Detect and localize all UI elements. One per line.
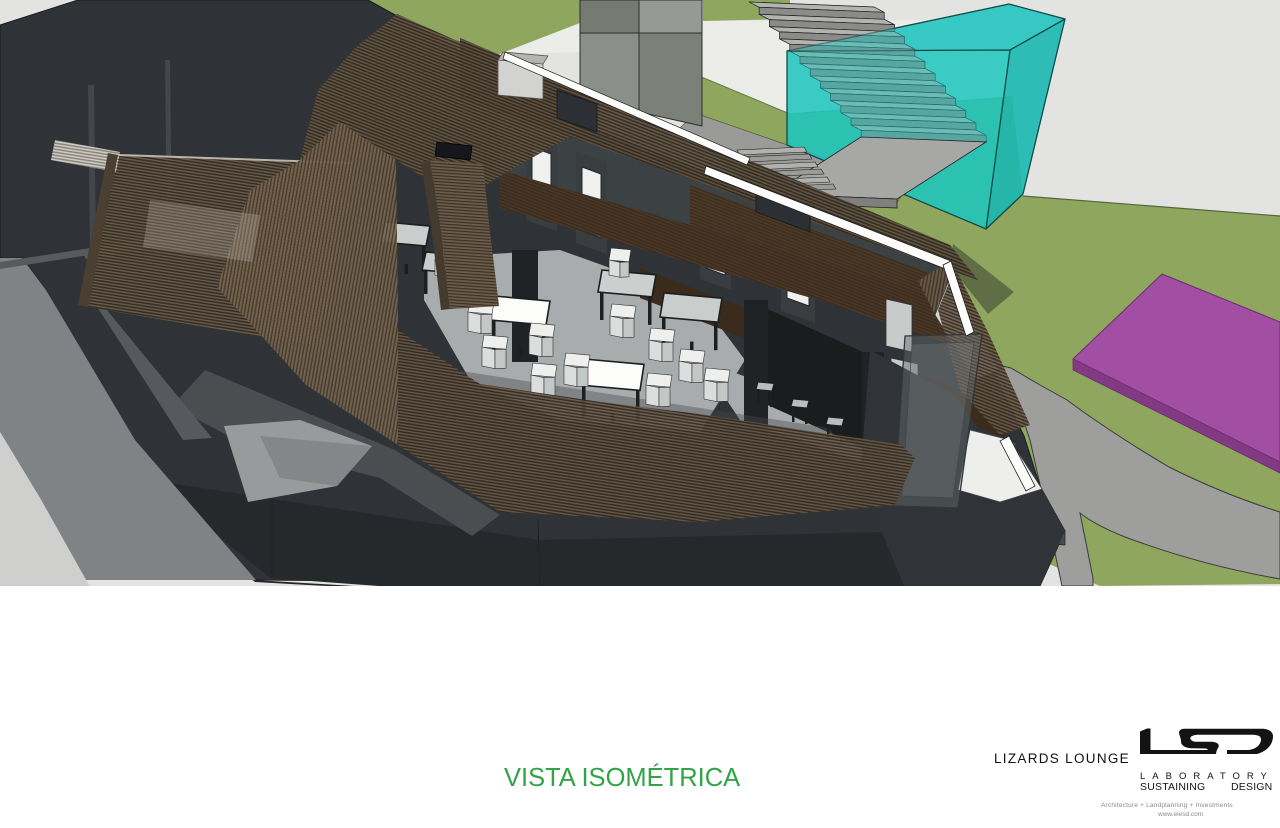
svg-text:SUSTAINING: SUSTAINING — [1140, 781, 1205, 793]
svg-text:LIZARDS LOUNGE: LIZARDS LOUNGE — [994, 751, 1130, 766]
svg-text:www.elesd.com: www.elesd.com — [1157, 811, 1203, 818]
svg-text:VISTA ISOMÉTRICA: VISTA ISOMÉTRICA — [504, 763, 740, 792]
svg-text:Architecture + Landplanning +: Architecture + Landplanning + Investment… — [1101, 802, 1233, 809]
svg-text:DESIGN: DESIGN — [1231, 781, 1272, 793]
